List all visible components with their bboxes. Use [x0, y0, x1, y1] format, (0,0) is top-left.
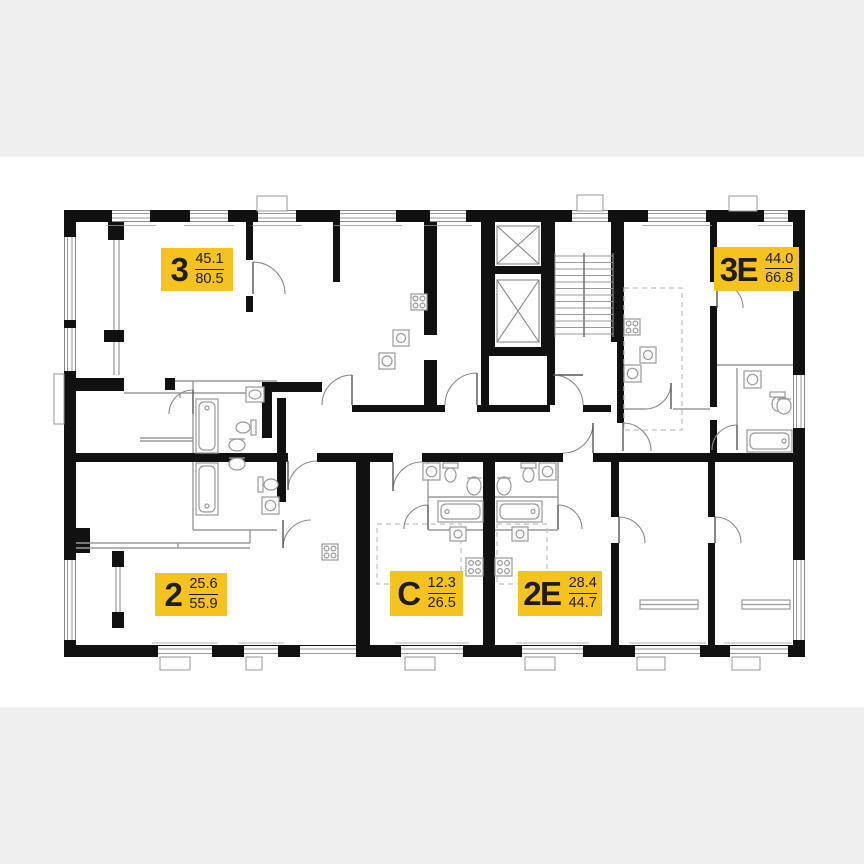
sink-icon: [246, 387, 264, 402]
unit-areas: 45.1 80.5: [195, 251, 223, 288]
stove-icon: [624, 319, 640, 335]
unit-type-label: 3: [170, 253, 187, 286]
toilet-icon: [236, 420, 256, 435]
unit-areas: 25.6 55.9: [189, 576, 217, 613]
toilet-icon: [521, 463, 536, 482]
unit-badge-3[interactable]: 3 45.1 80.5: [161, 248, 233, 291]
sink-icon: [497, 477, 511, 495]
unit-badge-2[interactable]: 2 25.6 55.9: [155, 573, 227, 616]
elevator-shaft-icon: [497, 226, 539, 342]
sink-icon: [229, 439, 245, 451]
door-arc-icon: [393, 462, 422, 491]
unit-badge-2e[interactable]: 2Е 28.4 44.7: [518, 571, 602, 616]
unit-badge-s[interactable]: С 12.3 26.5: [390, 571, 463, 616]
door-arc-icon: [563, 423, 593, 453]
washing-machine-icon: [744, 371, 761, 388]
door-arc-icon: [553, 375, 583, 405]
unit-total-area: 26.5: [428, 594, 456, 612]
sink-icon: [393, 330, 409, 346]
unit-badge-3e[interactable]: 3Е 44.0 66.8: [714, 247, 799, 291]
unit-total-area: 44.7: [569, 594, 597, 612]
stove-icon: [322, 544, 338, 560]
radiator-icon: [742, 600, 790, 609]
radiator-icon: [640, 600, 698, 609]
door-arc-icon: [645, 383, 671, 409]
unit-living-area: 44.0: [765, 251, 793, 270]
washing-machine-icon: [379, 353, 395, 369]
door-arc-icon: [619, 517, 645, 543]
stairs-icon: [555, 253, 613, 337]
unit-living-area: 28.4: [569, 575, 597, 594]
door-arc-icon: [404, 505, 428, 529]
unit-type-label: 2: [164, 578, 181, 611]
unit-total-area: 80.5: [195, 270, 223, 288]
door-arc-icon: [322, 375, 352, 405]
unit-total-area: 66.8: [765, 269, 793, 287]
floor-plan-viewport: 3 45.1 80.5 3Е 44.0 66.8 2 25.6 55.9 С 1…: [0, 0, 864, 864]
unit-type-label: 2Е: [523, 577, 560, 610]
sink-icon: [640, 347, 656, 363]
floor-plan-drawing: [0, 0, 864, 864]
sink-icon: [229, 458, 245, 470]
door-arc-icon: [288, 461, 317, 490]
bathtub-icon: [747, 430, 792, 452]
sink-icon: [777, 398, 791, 414]
unit-type-label: 3Е: [720, 253, 757, 286]
vent-shaft-icon: [54, 195, 757, 424]
bathtub-icon: [196, 399, 218, 453]
unit-living-area: 45.1: [195, 251, 223, 270]
unit-areas: 12.3 26.5: [428, 575, 456, 612]
bathtub-icon: [438, 501, 483, 522]
unit-areas: 44.0 66.8: [765, 251, 793, 288]
unit-living-area: 25.6: [189, 576, 217, 595]
door-arc-icon: [283, 520, 311, 548]
sink-icon: [467, 477, 481, 495]
stove-icon: [466, 558, 483, 576]
unit-type-label: С: [397, 577, 419, 610]
washing-machine-icon: [423, 463, 440, 480]
bathtub-icon: [196, 463, 218, 515]
washing-machine-icon: [624, 365, 641, 382]
door-arc-icon: [715, 517, 741, 543]
unit-total-area: 55.9: [189, 595, 217, 613]
stove-icon: [411, 294, 427, 310]
washing-machine-icon: [262, 497, 279, 514]
window-sills: [160, 657, 760, 670]
bathtub-icon: [497, 501, 542, 522]
door-arc-icon: [253, 262, 285, 294]
toilet-icon: [443, 463, 458, 482]
door-arc-icon: [445, 373, 477, 405]
door-arc-icon: [623, 423, 651, 451]
sink-icon: [450, 527, 466, 541]
washing-machine-icon: [539, 463, 556, 480]
door-arc-icon: [558, 505, 582, 529]
unit-living-area: 12.3: [428, 575, 456, 594]
toilet-icon: [258, 477, 278, 492]
sink-icon: [512, 527, 528, 541]
stove-icon: [495, 558, 512, 576]
unit-areas: 28.4 44.7: [569, 575, 597, 612]
